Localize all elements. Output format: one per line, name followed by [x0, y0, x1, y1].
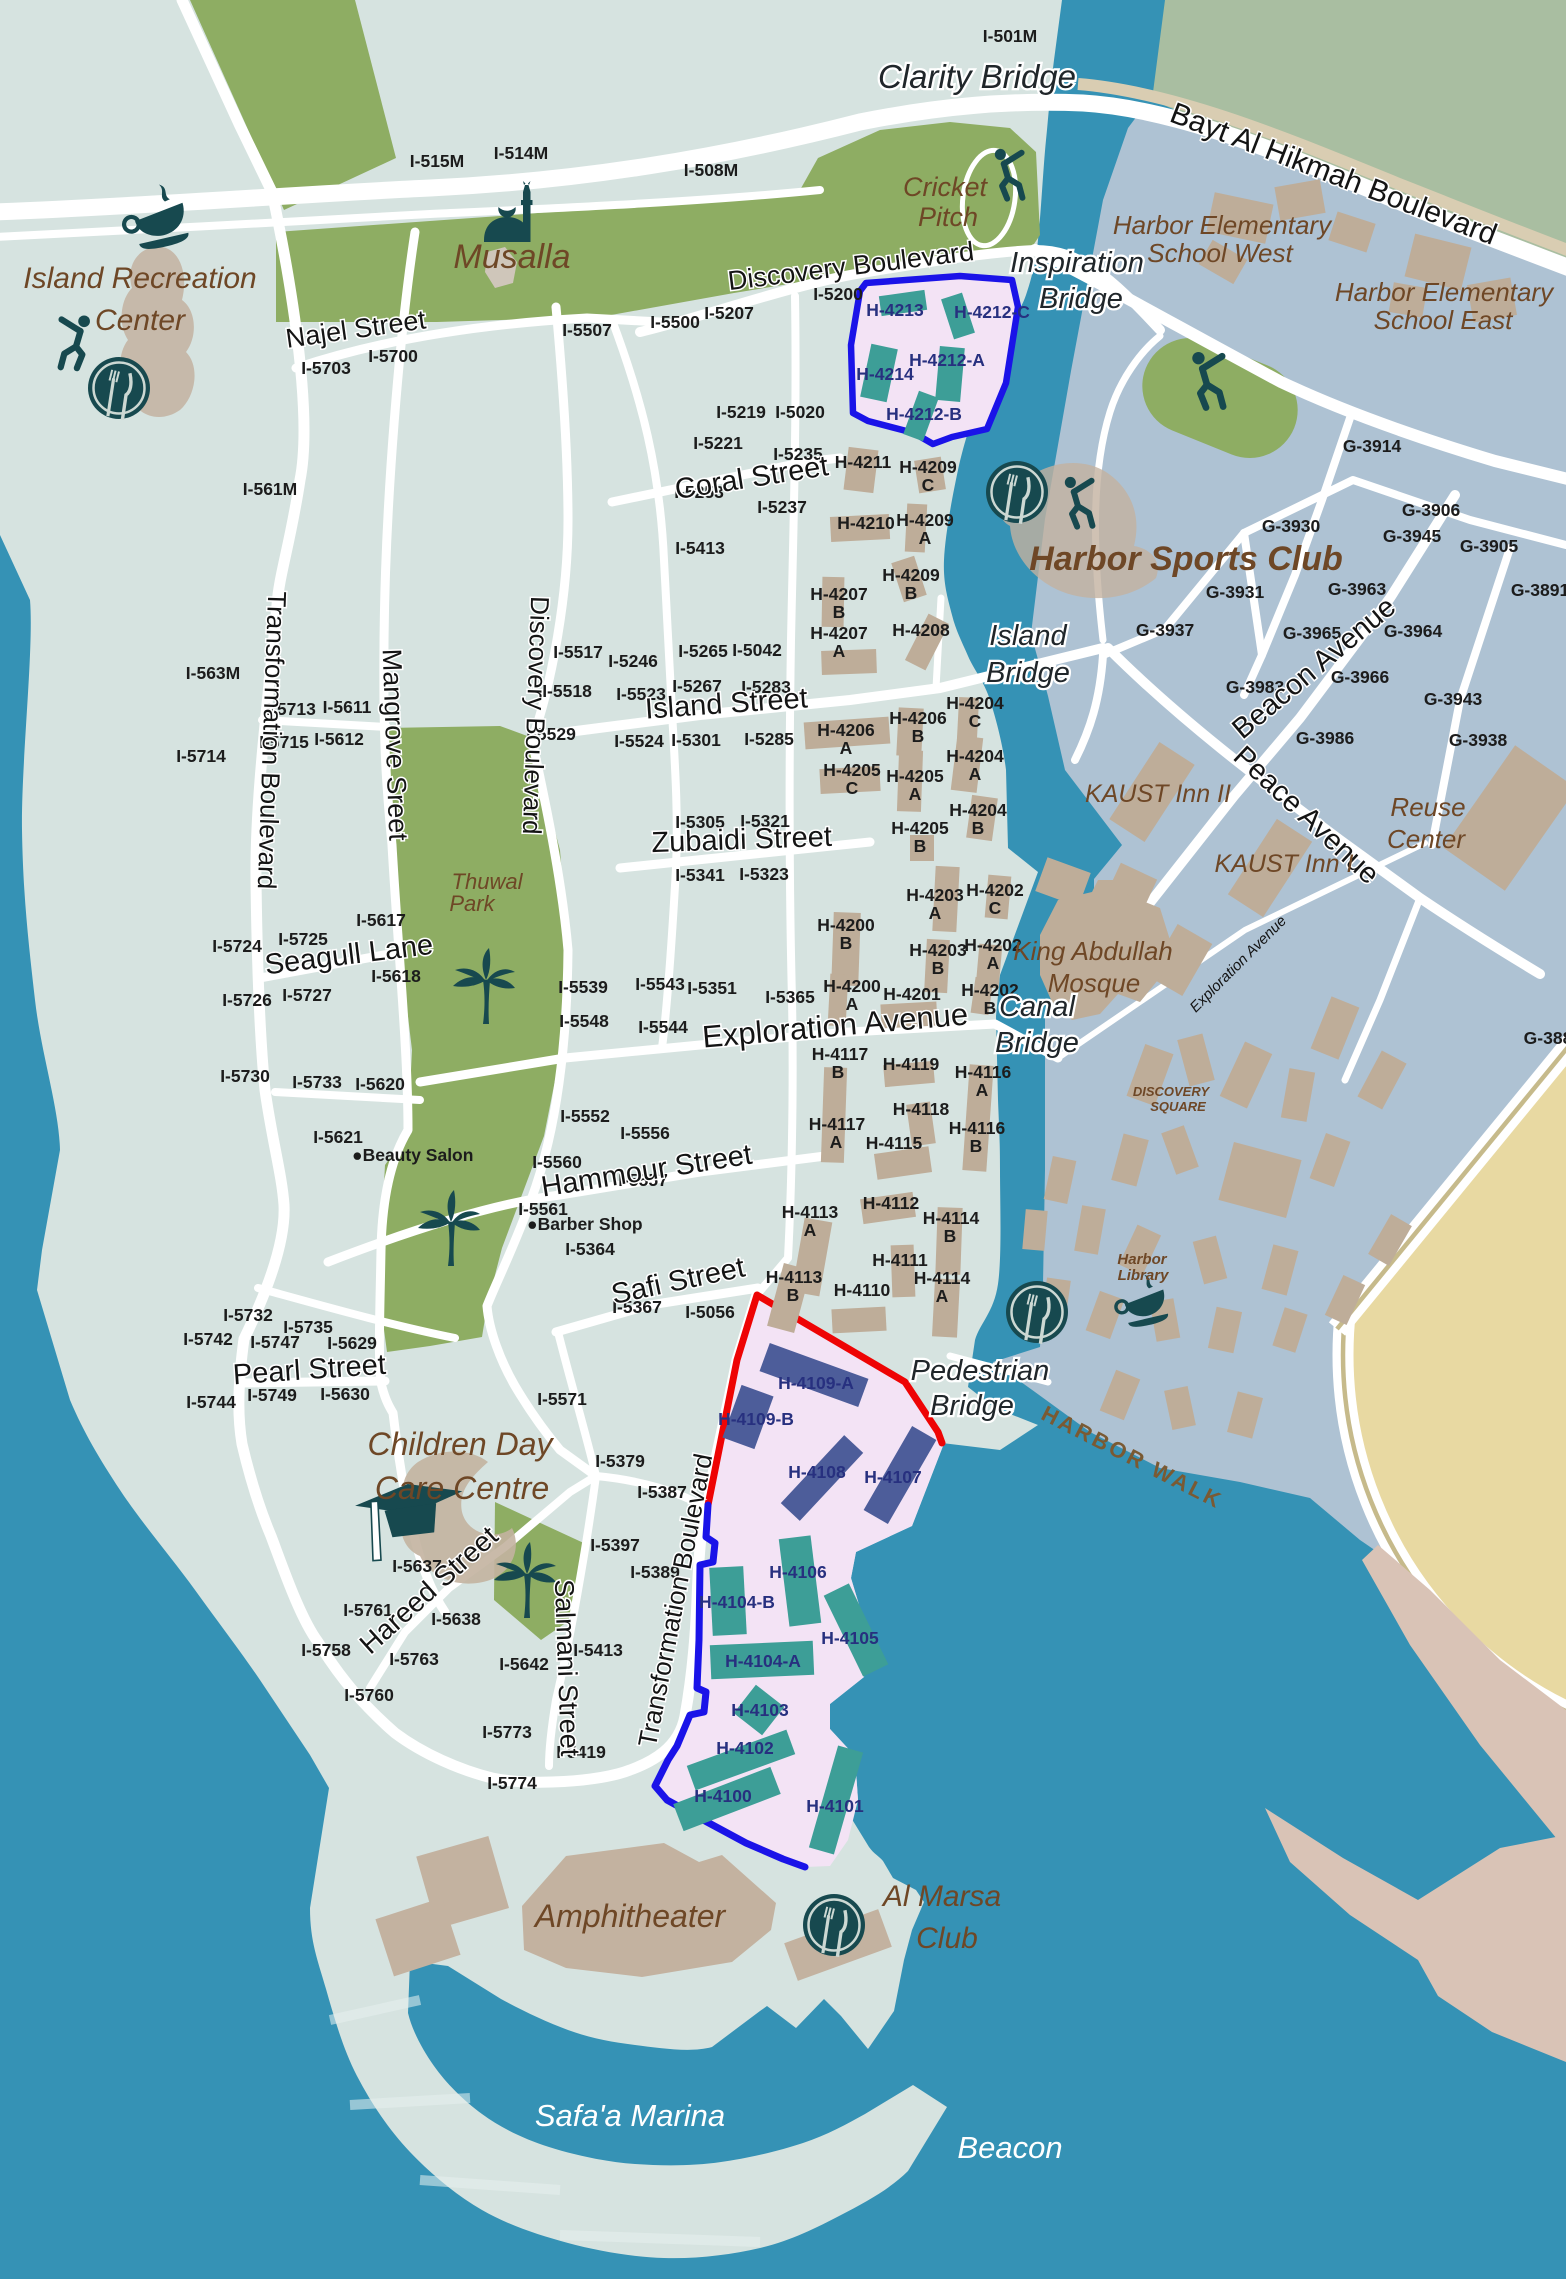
svg-text:H-4102: H-4102	[716, 1738, 774, 1758]
svg-text:Musalla: Musalla	[453, 238, 570, 276]
svg-text:I-5020: I-5020	[775, 402, 825, 422]
svg-text:I-5724: I-5724	[212, 936, 262, 956]
svg-text:I-5763: I-5763	[389, 1649, 439, 1669]
svg-text:H-4111: H-4111	[872, 1250, 928, 1270]
svg-text:I-5548: I-5548	[559, 1011, 609, 1031]
svg-text:H-4203: H-4203	[909, 940, 967, 960]
svg-text:Island: Island	[989, 620, 1067, 652]
svg-text:C: C	[922, 475, 935, 495]
svg-text:H-4207: H-4207	[810, 584, 867, 604]
svg-text:I-5611: I-5611	[323, 697, 372, 717]
svg-text:H-4205: H-4205	[886, 766, 944, 786]
svg-text:Center: Center	[95, 304, 186, 337]
svg-text:A: A	[929, 903, 942, 923]
svg-text:I-5774: I-5774	[487, 1773, 537, 1793]
svg-text:B: B	[787, 1285, 800, 1305]
svg-text:H-4109-B: H-4109-B	[718, 1409, 794, 1429]
svg-text:A: A	[976, 1080, 989, 1100]
svg-text:H-4115: H-4115	[866, 1133, 923, 1153]
svg-text:KAUST Inn I: KAUST Inn I	[1215, 850, 1354, 878]
svg-text:Library: Library	[1118, 1267, 1170, 1284]
svg-text:I-5219: I-5219	[716, 402, 766, 422]
svg-text:H-4119: H-4119	[883, 1054, 940, 1074]
svg-text:I-5744: I-5744	[186, 1392, 236, 1412]
svg-text:H-4212-C: H-4212-C	[954, 302, 1030, 322]
svg-text:B: B	[832, 1062, 845, 1082]
svg-text:H-4200: H-4200	[817, 915, 875, 935]
svg-text:I-5703: I-5703	[301, 358, 351, 378]
svg-text:I-5571: I-5571	[537, 1389, 587, 1409]
svg-text:H-4104-B: H-4104-B	[699, 1592, 775, 1612]
svg-text:I-5552: I-5552	[560, 1106, 610, 1126]
svg-text:I-5612: I-5612	[314, 729, 364, 749]
svg-text:G-388: G-388	[1524, 1028, 1566, 1048]
svg-text:H-4117: H-4117	[812, 1044, 868, 1064]
svg-text:I-5507: I-5507	[562, 320, 612, 340]
svg-text:H-4107: H-4107	[864, 1467, 921, 1487]
svg-text:H-4118: H-4118	[893, 1099, 950, 1119]
svg-text:G-3891: G-3891	[1511, 580, 1566, 600]
svg-text:I-5539: I-5539	[558, 977, 608, 997]
svg-text:H-4212-B: H-4212-B	[886, 404, 962, 424]
svg-text:I-501M: I-501M	[983, 26, 1037, 46]
svg-text:I-5760: I-5760	[344, 1685, 394, 1705]
svg-text:H-4202: H-4202	[966, 880, 1024, 900]
svg-text:Zubaidi Street: Zubaidi Street	[651, 821, 833, 859]
svg-text:C: C	[846, 778, 859, 798]
svg-text:I-5200: I-5200	[813, 284, 863, 304]
svg-text:I-5500: I-5500	[650, 312, 700, 332]
svg-text:I-5413: I-5413	[675, 538, 725, 558]
svg-text:A: A	[936, 1286, 949, 1306]
svg-text:I-561M: I-561M	[243, 479, 297, 499]
svg-text:H-4103: H-4103	[731, 1700, 789, 1720]
svg-text:I-5397: I-5397	[590, 1535, 640, 1555]
svg-text:H-4211: H-4211	[835, 452, 892, 472]
svg-text:G-3914: G-3914	[1343, 436, 1402, 456]
svg-text:Beacon: Beacon	[957, 2130, 1062, 2165]
svg-text:H-4113: H-4113	[766, 1267, 823, 1287]
svg-text:Bridge: Bridge	[930, 1390, 1014, 1422]
svg-text:B: B	[944, 1226, 957, 1246]
svg-text:C: C	[969, 711, 982, 731]
svg-text:●Beauty Salon: ●Beauty Salon	[352, 1145, 473, 1165]
svg-text:I-5630: I-5630	[320, 1384, 370, 1404]
svg-text:Safa'a Marina: Safa'a Marina	[535, 2098, 725, 2133]
svg-text:A: A	[919, 528, 932, 548]
svg-text:A: A	[833, 641, 846, 661]
svg-text:B: B	[984, 998, 997, 1018]
svg-text:G-3945: G-3945	[1383, 526, 1442, 546]
svg-text:H-4114: H-4114	[923, 1208, 980, 1228]
svg-text:A: A	[804, 1220, 817, 1240]
svg-text:KAUST Inn II: KAUST Inn II	[1085, 780, 1231, 808]
svg-text:I-5301: I-5301	[671, 730, 721, 750]
svg-text:Club: Club	[916, 1922, 978, 1955]
svg-text:Pedestrian: Pedestrian	[911, 1355, 1050, 1387]
svg-text:I-5621: I-5621	[313, 1127, 363, 1147]
svg-text:Harbor: Harbor	[1117, 1251, 1167, 1268]
svg-text:Bridge: Bridge	[995, 1027, 1079, 1059]
svg-text:A: A	[969, 764, 982, 784]
svg-text:G-3964: G-3964	[1384, 621, 1443, 641]
svg-text:I-5714: I-5714	[176, 746, 226, 766]
svg-text:G-3937: G-3937	[1136, 620, 1194, 640]
svg-text:G-3905: G-3905	[1460, 536, 1519, 556]
svg-text:Island Recreation: Island Recreation	[23, 262, 256, 295]
svg-text:I-5733: I-5733	[292, 1072, 342, 1092]
svg-text:I-5365: I-5365	[765, 987, 815, 1007]
svg-text:I-5747: I-5747	[250, 1332, 300, 1352]
svg-text:Clarity Bridge: Clarity Bridge	[878, 58, 1076, 95]
svg-text:I-5730: I-5730	[220, 1066, 270, 1086]
svg-text:Salmani Street: Salmani Street	[549, 1579, 585, 1758]
svg-text:G-3943: G-3943	[1424, 689, 1483, 709]
svg-text:I-5544: I-5544	[638, 1017, 688, 1037]
svg-text:I-5265: I-5265	[678, 641, 728, 661]
svg-text:H-4206: H-4206	[889, 708, 947, 728]
svg-text:H-4204: H-4204	[949, 800, 1007, 820]
svg-text:I-5758: I-5758	[301, 1640, 351, 1660]
svg-text:I-5517: I-5517	[553, 642, 603, 662]
svg-text:Pitch: Pitch	[918, 202, 978, 232]
svg-text:H-4105: H-4105	[821, 1628, 879, 1648]
svg-text:I-5207: I-5207	[704, 303, 754, 323]
svg-text:H-4110: H-4110	[834, 1280, 891, 1300]
svg-text:I-5379: I-5379	[595, 1451, 645, 1471]
svg-text:Bridge: Bridge	[1039, 283, 1123, 315]
svg-text:I-5642: I-5642	[499, 1654, 549, 1674]
svg-text:Harbor Sports Club: Harbor Sports Club	[1029, 540, 1343, 578]
svg-text:B: B	[905, 583, 918, 603]
svg-text:I-5556: I-5556	[620, 1123, 670, 1143]
svg-text:H-4204: H-4204	[946, 693, 1004, 713]
svg-text:H-4113: H-4113	[782, 1202, 839, 1222]
svg-text:I-5620: I-5620	[355, 1074, 405, 1094]
svg-text:B: B	[970, 1136, 983, 1156]
svg-text:H-4100: H-4100	[694, 1786, 752, 1806]
svg-text:Inspiration: Inspiration	[1010, 247, 1144, 279]
svg-text:Reuse: Reuse	[1390, 792, 1465, 822]
svg-text:A: A	[830, 1132, 843, 1152]
svg-text:H-4210: H-4210	[837, 513, 895, 533]
svg-text:A: A	[909, 784, 922, 804]
svg-text:I-5618: I-5618	[371, 966, 421, 986]
svg-text:H-4213: H-4213	[866, 300, 924, 320]
svg-text:I-563M: I-563M	[186, 663, 240, 683]
svg-text:G-3966: G-3966	[1331, 667, 1390, 687]
svg-text:H-4209: H-4209	[896, 510, 954, 530]
svg-text:●Barber Shop: ●Barber Shop	[527, 1214, 643, 1234]
svg-text:I-5246: I-5246	[608, 651, 658, 671]
svg-text:Cricket: Cricket	[903, 172, 989, 202]
svg-text:B: B	[932, 958, 945, 978]
svg-text:SQUARE: SQUARE	[1150, 1099, 1206, 1114]
svg-text:H-4206: H-4206	[817, 720, 875, 740]
svg-text:B: B	[833, 602, 846, 622]
svg-text:H-4205: H-4205	[823, 760, 881, 780]
svg-text:H-4106: H-4106	[769, 1562, 827, 1582]
svg-text:I-5617: I-5617	[356, 910, 406, 930]
svg-text:A: A	[840, 738, 853, 758]
svg-text:DISCOVERY: DISCOVERY	[1133, 1084, 1211, 1099]
svg-text:C: C	[989, 898, 1002, 918]
svg-text:I-5364: I-5364	[565, 1239, 615, 1259]
svg-text:H-4112: H-4112	[863, 1193, 920, 1213]
svg-text:I-514M: I-514M	[494, 143, 548, 163]
svg-text:Amphitheater: Amphitheater	[533, 1898, 727, 1934]
svg-text:H-4109-A: H-4109-A	[778, 1373, 854, 1393]
svg-text:H-4108: H-4108	[788, 1462, 846, 1482]
svg-text:I-5237: I-5237	[757, 497, 807, 517]
svg-text:I-5285: I-5285	[744, 729, 794, 749]
svg-text:H-4104-A: H-4104-A	[725, 1651, 801, 1671]
svg-text:B: B	[840, 933, 853, 953]
svg-text:B: B	[914, 836, 927, 856]
svg-text:Care Centre: Care Centre	[375, 1470, 549, 1506]
svg-text:H-4200: H-4200	[823, 976, 881, 996]
svg-text:I-515M: I-515M	[410, 151, 464, 171]
svg-text:G-3986: G-3986	[1296, 728, 1355, 748]
svg-text:Center: Center	[1387, 824, 1466, 854]
svg-text:I-5221: I-5221	[693, 433, 743, 453]
svg-text:H-4204: H-4204	[946, 746, 1004, 766]
svg-text:School West: School West	[1147, 238, 1294, 268]
svg-text:Park: Park	[449, 891, 495, 916]
svg-text:I-5524: I-5524	[614, 731, 664, 751]
svg-text:B: B	[912, 726, 925, 746]
svg-text:H-4114: H-4114	[914, 1268, 971, 1288]
svg-text:Children Day: Children Day	[368, 1426, 555, 1462]
svg-text:I-5727: I-5727	[282, 985, 332, 1005]
svg-text:I-5773: I-5773	[482, 1722, 532, 1742]
svg-text:I-5732: I-5732	[223, 1305, 273, 1325]
svg-text:Bridge: Bridge	[986, 657, 1070, 689]
svg-text:H-4101: H-4101	[806, 1796, 864, 1816]
svg-text:H-4212-A: H-4212-A	[909, 350, 985, 370]
svg-text:I-5742: I-5742	[183, 1329, 233, 1349]
svg-text:H-4207: H-4207	[810, 623, 867, 643]
svg-text:H-4117: H-4117	[809, 1114, 865, 1134]
svg-text:I-5638: I-5638	[431, 1609, 481, 1629]
svg-text:H-4205: H-4205	[891, 818, 949, 838]
svg-text:H-4214: H-4214	[856, 364, 914, 384]
svg-text:H-4208: H-4208	[892, 620, 950, 640]
svg-text:I-508M: I-508M	[684, 160, 738, 180]
svg-text:I-5351: I-5351	[687, 978, 737, 998]
svg-text:Harbor Elementary: Harbor Elementary	[1335, 277, 1555, 307]
svg-text:School East: School East	[1374, 305, 1515, 335]
svg-text:Mosque: Mosque	[1048, 968, 1141, 998]
svg-text:G-3906: G-3906	[1402, 500, 1461, 520]
svg-text:G-3938: G-3938	[1449, 730, 1508, 750]
svg-text:H-4116: H-4116	[955, 1062, 1012, 1082]
svg-text:I-5543: I-5543	[635, 974, 685, 994]
svg-text:I-5056: I-5056	[685, 1302, 735, 1322]
svg-text:H-4116: H-4116	[949, 1118, 1006, 1138]
svg-text:I-5042: I-5042	[732, 640, 782, 660]
svg-text:Al Marsa: Al Marsa	[881, 1880, 1001, 1913]
svg-text:B: B	[972, 818, 985, 838]
svg-text:I-5700: I-5700	[368, 346, 418, 366]
svg-text:Harbor Elementary: Harbor Elementary	[1113, 210, 1333, 240]
svg-text:H-4203: H-4203	[906, 885, 964, 905]
svg-text:H-4209: H-4209	[882, 565, 940, 585]
svg-text:I-5341: I-5341	[675, 865, 725, 885]
svg-text:G-3931: G-3931	[1206, 582, 1265, 602]
svg-text:I-5726: I-5726	[222, 990, 272, 1010]
svg-text:H-4209: H-4209	[899, 457, 957, 477]
svg-text:King Abdullah: King Abdullah	[1013, 936, 1173, 966]
svg-text:A: A	[987, 953, 1000, 973]
svg-text:I-5323: I-5323	[739, 864, 789, 884]
svg-text:G-3930: G-3930	[1262, 516, 1321, 536]
